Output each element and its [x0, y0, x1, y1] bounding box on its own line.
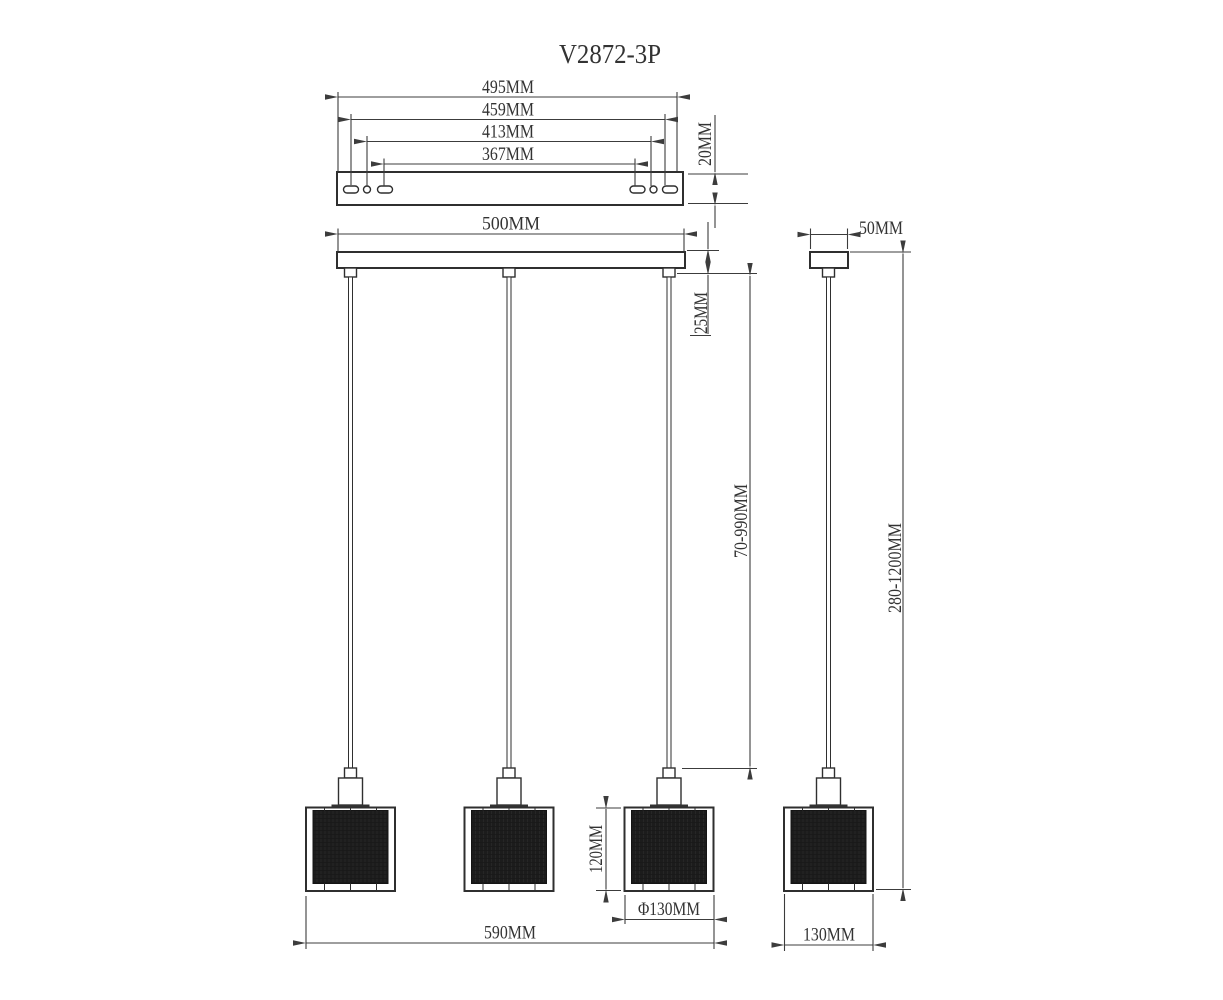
dim-label-25: 25MM [691, 292, 712, 334]
pendant-drop-side [784, 268, 873, 891]
dim-label-280-1200: 280-1200MM [885, 523, 906, 613]
ceiling-canopy-side [810, 252, 848, 268]
dim-canopy-height: 25MM [677, 222, 757, 336]
ceiling-canopy-front [337, 252, 685, 268]
bracket-hole-left [364, 186, 371, 193]
dim-label-500: 500MM [482, 214, 540, 235]
bracket-hole-right [650, 186, 657, 193]
dim-suspension-length: 70-990MM [682, 276, 757, 769]
dim-label-dia130: Φ130MM [638, 899, 700, 920]
bracket-slot-left-outer [344, 186, 359, 193]
dim-overall-height: 280-1200MM [850, 252, 911, 890]
dim-side-shade-width: 130MM [785, 894, 874, 951]
dim-label-20: 20MM [695, 122, 716, 166]
dim-label-130: 130MM [803, 925, 855, 946]
bracket-slot-right-inner [630, 186, 645, 193]
mounting-bracket [337, 172, 683, 205]
dim-label-495: 495MM [482, 77, 534, 98]
dim-label-367: 367MM [482, 144, 534, 165]
bracket-slot-left-inner [378, 186, 393, 193]
dim-label-413: 413MM [482, 122, 534, 143]
pendant-drop-1 [306, 268, 395, 891]
pendant-lamp-drawing: V2872-3P 495MM 459MM 413MM 367MM [0, 0, 1223, 1000]
dim-bracket-thickness: 20MM [688, 115, 748, 228]
dim-label-590: 590MM [484, 923, 536, 944]
dim-shade-diameter: Φ130MM [625, 895, 714, 949]
pendant-drop-3 [625, 268, 714, 891]
pendant-drop-2 [465, 268, 554, 891]
dim-label-50: 50MM [859, 218, 903, 239]
dim-shade-height: 120MM [586, 808, 621, 891]
dim-label-459: 459MM [482, 100, 534, 121]
dim-canopy-depth: 50MM [811, 218, 904, 249]
dim-label-120: 120MM [586, 825, 607, 873]
dim-label-70-990: 70-990MM [731, 484, 752, 558]
bracket-slot-right-outer [663, 186, 678, 193]
drawing-title: V2872-3P [559, 39, 661, 69]
technical-drawing-page: V2872-3P 495MM 459MM 413MM 367MM [0, 0, 1223, 1000]
dim-canopy-width: 500MM [338, 214, 684, 252]
